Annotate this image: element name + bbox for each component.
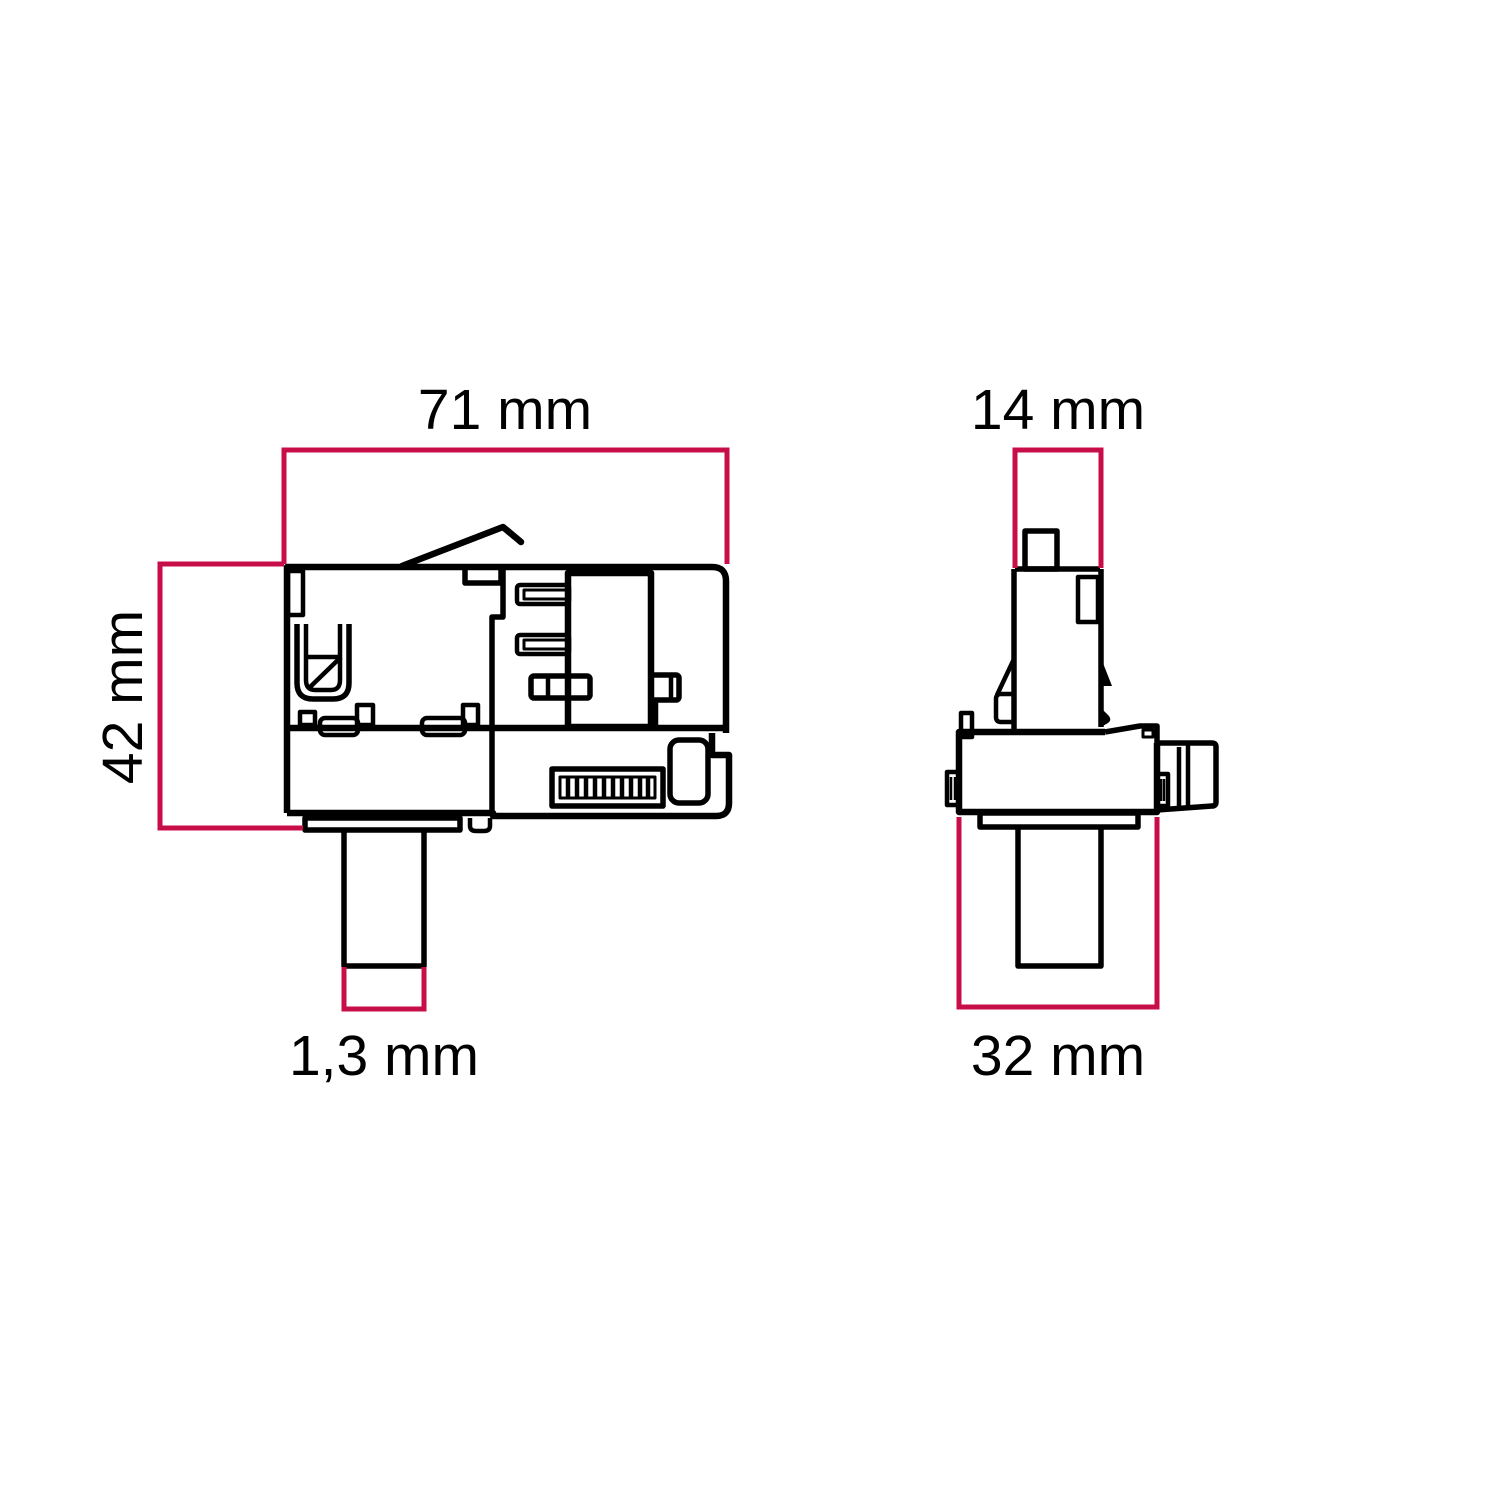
- front-step-detail: [1143, 730, 1153, 737]
- side-width-label: 71 mm: [418, 378, 592, 442]
- side-body-outline-upper: [287, 567, 726, 813]
- front-body-outline: [959, 732, 1157, 812]
- front-right-grip-ribs: [1161, 779, 1164, 801]
- side-contact-module: [568, 573, 651, 727]
- front-right-barb-2: [1101, 708, 1110, 727]
- front-flange: [980, 813, 1138, 827]
- side-flange-tab: [470, 818, 490, 831]
- side-contact-pin-4: [651, 675, 679, 700]
- front-view: [947, 531, 1216, 966]
- front-stem: [1018, 827, 1101, 966]
- dim-bracket-stem-13: [344, 967, 424, 1009]
- front-neck-pocket: [1078, 577, 1098, 622]
- side-toggle-lever: [402, 527, 521, 566]
- side-grille-ribs: [568, 778, 648, 797]
- side-latch: [670, 740, 708, 803]
- side-height-label: 42 mm: [91, 610, 155, 784]
- front-top-label: 14 mm: [971, 378, 1145, 442]
- front-latch-block-inner: [1179, 745, 1188, 807]
- side-contact-pin-2-inner: [524, 640, 569, 649]
- drawing-canvas: 71 mm 42 mm 1,3 mm 14 mm 32 mm: [0, 0, 1500, 1500]
- side-contact-pin-1-inner: [524, 590, 569, 599]
- side-tab-5: [463, 705, 478, 725]
- front-right-grip: [1157, 774, 1168, 806]
- front-left-grip-ribs: [951, 777, 955, 800]
- dim-bracket-bottom-32: [959, 817, 1157, 1007]
- side-top-slot: [288, 571, 303, 615]
- side-contact-pin-3: [531, 676, 590, 698]
- front-left-grip: [947, 772, 959, 805]
- dim-bracket-height-42: [160, 564, 303, 828]
- side-stem: [344, 830, 424, 966]
- dim-bracket-width-71: [284, 450, 727, 564]
- side-view: [287, 527, 729, 966]
- side-flange: [305, 818, 460, 830]
- side-inner-step-wall: [492, 567, 503, 813]
- side-stem-label: 1,3 mm: [289, 1024, 479, 1088]
- technical-drawing: 71 mm 42 mm 1,3 mm 14 mm 32 mm: [0, 0, 1500, 1500]
- side-tab-1: [300, 712, 315, 725]
- front-bottom-label: 32 mm: [971, 1024, 1145, 1088]
- side-ground-clip-diagonal: [308, 657, 341, 689]
- front-knob: [1025, 531, 1057, 569]
